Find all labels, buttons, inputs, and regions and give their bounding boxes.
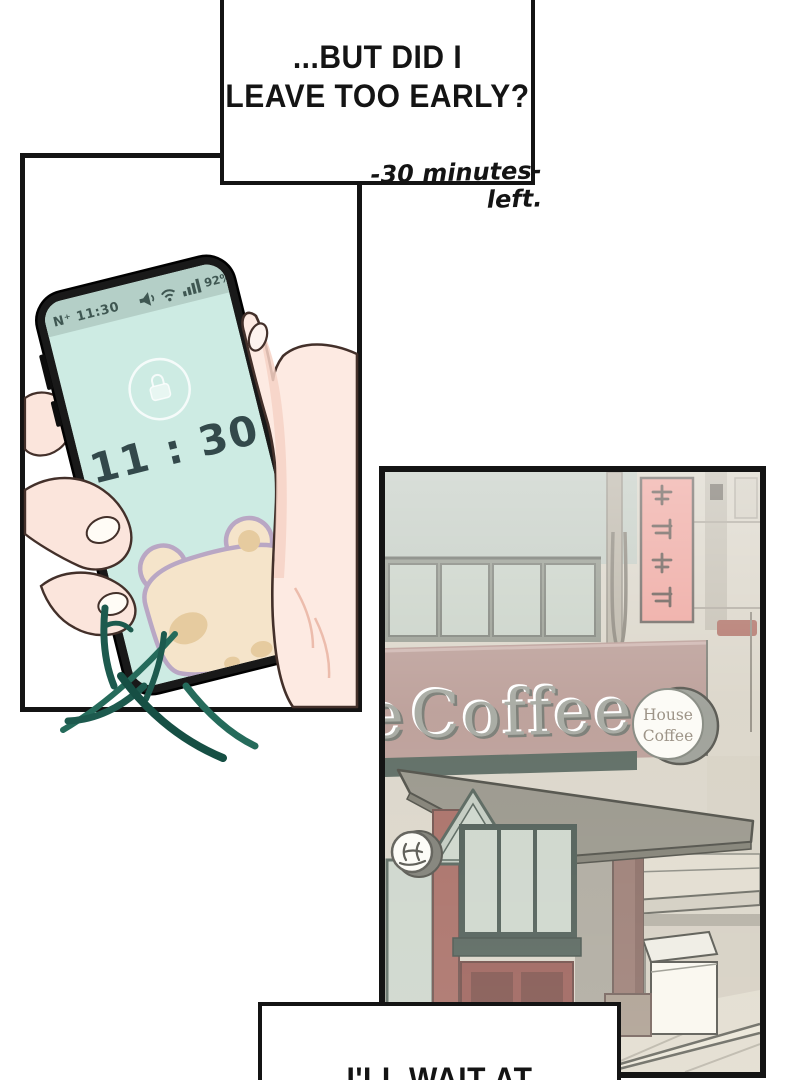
coffee-shop-panel: e Coffee e Coffee e Coffee House Coffee	[379, 466, 766, 1078]
bottom-speech-bubble: I'LL WAIT AT	[258, 1002, 621, 1080]
phone-panel-art: N⁺ 11:30	[25, 158, 357, 707]
speech-line: LEAVE TOO EARLY?	[224, 75, 531, 117]
speech-line: ...BUT DID I	[224, 36, 531, 78]
speech-line: I'LL WAIT AT	[262, 1058, 617, 1080]
caption-30-minutes: -30 minutes- left.	[339, 156, 542, 217]
page: ...BUT DID I LEAVE TOO EARLY? -30 minute…	[0, 0, 800, 1080]
faded-overlay	[385, 472, 760, 1072]
phone-panel: N⁺ 11:30	[20, 153, 362, 712]
coffee-shop-art: e Coffee e Coffee e Coffee House Coffee	[385, 472, 760, 1072]
